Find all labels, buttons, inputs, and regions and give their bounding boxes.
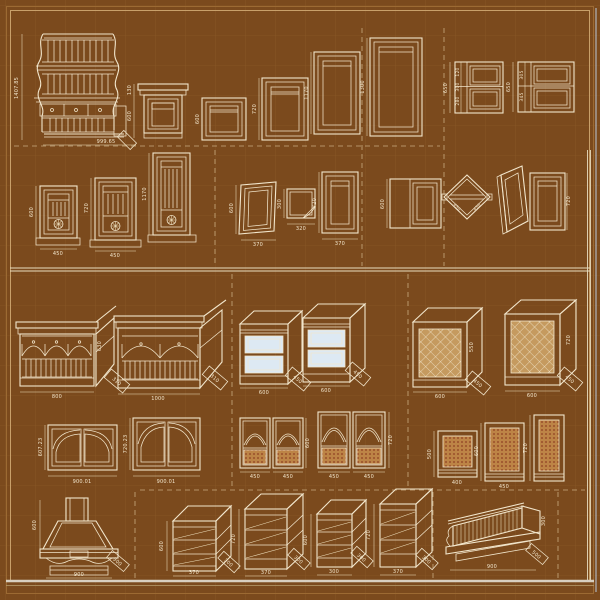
- dim-corner-height: 1407.85: [14, 77, 20, 99]
- dim-rosette-a-height: 600: [29, 207, 35, 217]
- dim-arch-a-width: 900.01: [73, 479, 92, 485]
- dim-mesh-a-width: 400: [452, 480, 462, 486]
- dim-stack-a-s3: 280: [455, 96, 461, 105]
- dim-rack-b-width: 1000: [151, 396, 165, 402]
- dim-plain-door-height: 600: [380, 199, 386, 209]
- dim-rosette-b-width: 450: [110, 253, 120, 259]
- dim-door-right-height: 720: [566, 196, 572, 206]
- dim-drawer-a-width: 600: [259, 390, 269, 396]
- dim-arch-b-width: 900.01: [157, 479, 176, 485]
- dim-skew-width: 370: [253, 242, 263, 248]
- dim-shelf-b-width: 370: [261, 570, 271, 576]
- dim-rack-a-height: 630: [97, 341, 103, 351]
- dim-pair-a-w2: 450: [283, 474, 293, 480]
- dim-mesh-b-height: 600: [474, 446, 480, 456]
- dim-lattice-b-width: 600: [527, 393, 537, 399]
- dim-small-cab-2: 600: [127, 111, 133, 121]
- dim-hood-height: 600: [32, 520, 38, 530]
- dim-hood-width: 900: [74, 572, 84, 578]
- dim-small-cab-1: 130: [127, 85, 133, 95]
- dim-pair-b-w2: 450: [364, 474, 374, 480]
- dim-shelf-c-width: 300: [329, 569, 339, 575]
- dim-mesh-c-height: 720: [523, 443, 529, 453]
- dim-pair-a-w1: 450: [250, 474, 260, 480]
- dim-folded-height: 300: [277, 199, 283, 209]
- dim-rosette-b-height: 720: [84, 203, 90, 213]
- dim-rack-a-width: 800: [52, 394, 62, 400]
- dim-folded-width: 320: [296, 226, 306, 232]
- dim-wide-hood-height: 300: [541, 516, 547, 526]
- dim-tall-b-height: 1300: [360, 80, 366, 94]
- dim-pair-b-height: 720: [388, 435, 394, 445]
- dim-shelf-d-height: 720: [366, 530, 372, 540]
- dim-stack-b-s2: 345: [519, 92, 525, 101]
- dim-pair-a-height: 600: [305, 438, 311, 448]
- dim-shelf-b-height: 720: [231, 534, 237, 544]
- dim-skew-height: 600: [229, 203, 235, 213]
- dim-mesh-b-width: 450: [499, 484, 509, 490]
- dim-door-a-height: 600: [195, 114, 201, 124]
- blueprint-canvas: 1407.85 999.65 130 600 600 720 11: [0, 0, 600, 600]
- dim-stack-a-height: 650: [443, 83, 449, 93]
- dim-shelf-a-height: 600: [159, 541, 165, 551]
- dim-stack-a-s1: 120: [455, 67, 461, 76]
- dim-stack-b-height: 650: [506, 82, 512, 92]
- dim-lattice-a-width: 600: [435, 394, 445, 400]
- dim-tall-a-height: 1170: [304, 86, 310, 100]
- dim-drawer-b-width: 600: [321, 388, 331, 394]
- dim-wide-hood-width: 900: [487, 564, 497, 570]
- dim-lattice-a-height: 550: [469, 342, 475, 352]
- dim-pair-b-w1: 450: [329, 474, 339, 480]
- dim-rosette-a-width: 450: [53, 251, 63, 257]
- blueprint-sheet: 1407.85 999.65 130 600 600 720 11: [0, 0, 600, 600]
- dim-lattice-b-height: 720: [566, 335, 572, 345]
- dim-mesh-a-height: 500: [427, 449, 433, 459]
- dim-shelf-c-height: 600: [303, 535, 309, 545]
- dim-stack-b-s1: 305: [519, 70, 525, 79]
- dim-stack-a-s2: 300: [455, 82, 461, 91]
- dim-rosette-c-height: 1170: [142, 187, 148, 201]
- dim-door-b-height: 720: [252, 104, 258, 114]
- dim-shelf-a-width: 370: [189, 570, 199, 576]
- dim-door720-width: 370: [335, 241, 345, 247]
- dim-shelf-d-width: 370: [393, 569, 403, 575]
- dim-corner-width: 999.65: [97, 139, 116, 145]
- dim-door720-height: 720: [312, 198, 318, 208]
- dim-arch-b-height: 720.23: [123, 435, 129, 454]
- dim-arch-a-height: 607.23: [38, 438, 44, 457]
